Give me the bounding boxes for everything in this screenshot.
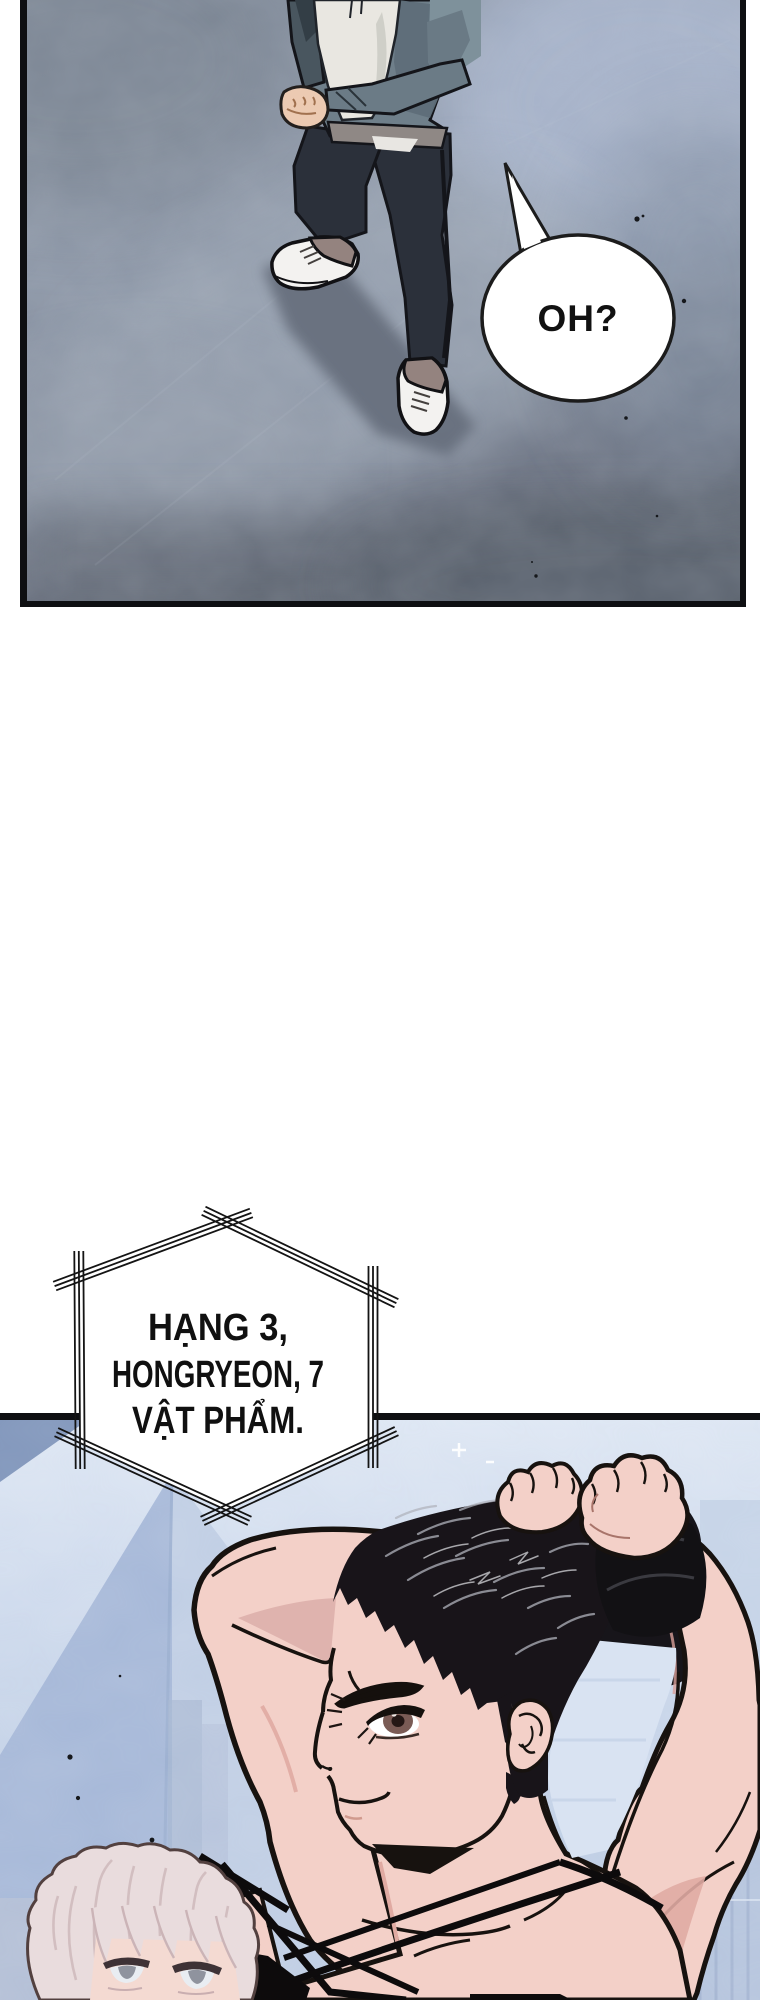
- svg-text:VẬT PHẨM.: VẬT PHẨM.: [132, 1397, 304, 1442]
- svg-text:HONGRYEON, 7: HONGRYEON, 7: [112, 1354, 324, 1396]
- svg-text:HẠNG 3,: HẠNG 3,: [148, 1307, 288, 1349]
- svg-text:OH?: OH?: [537, 298, 618, 339]
